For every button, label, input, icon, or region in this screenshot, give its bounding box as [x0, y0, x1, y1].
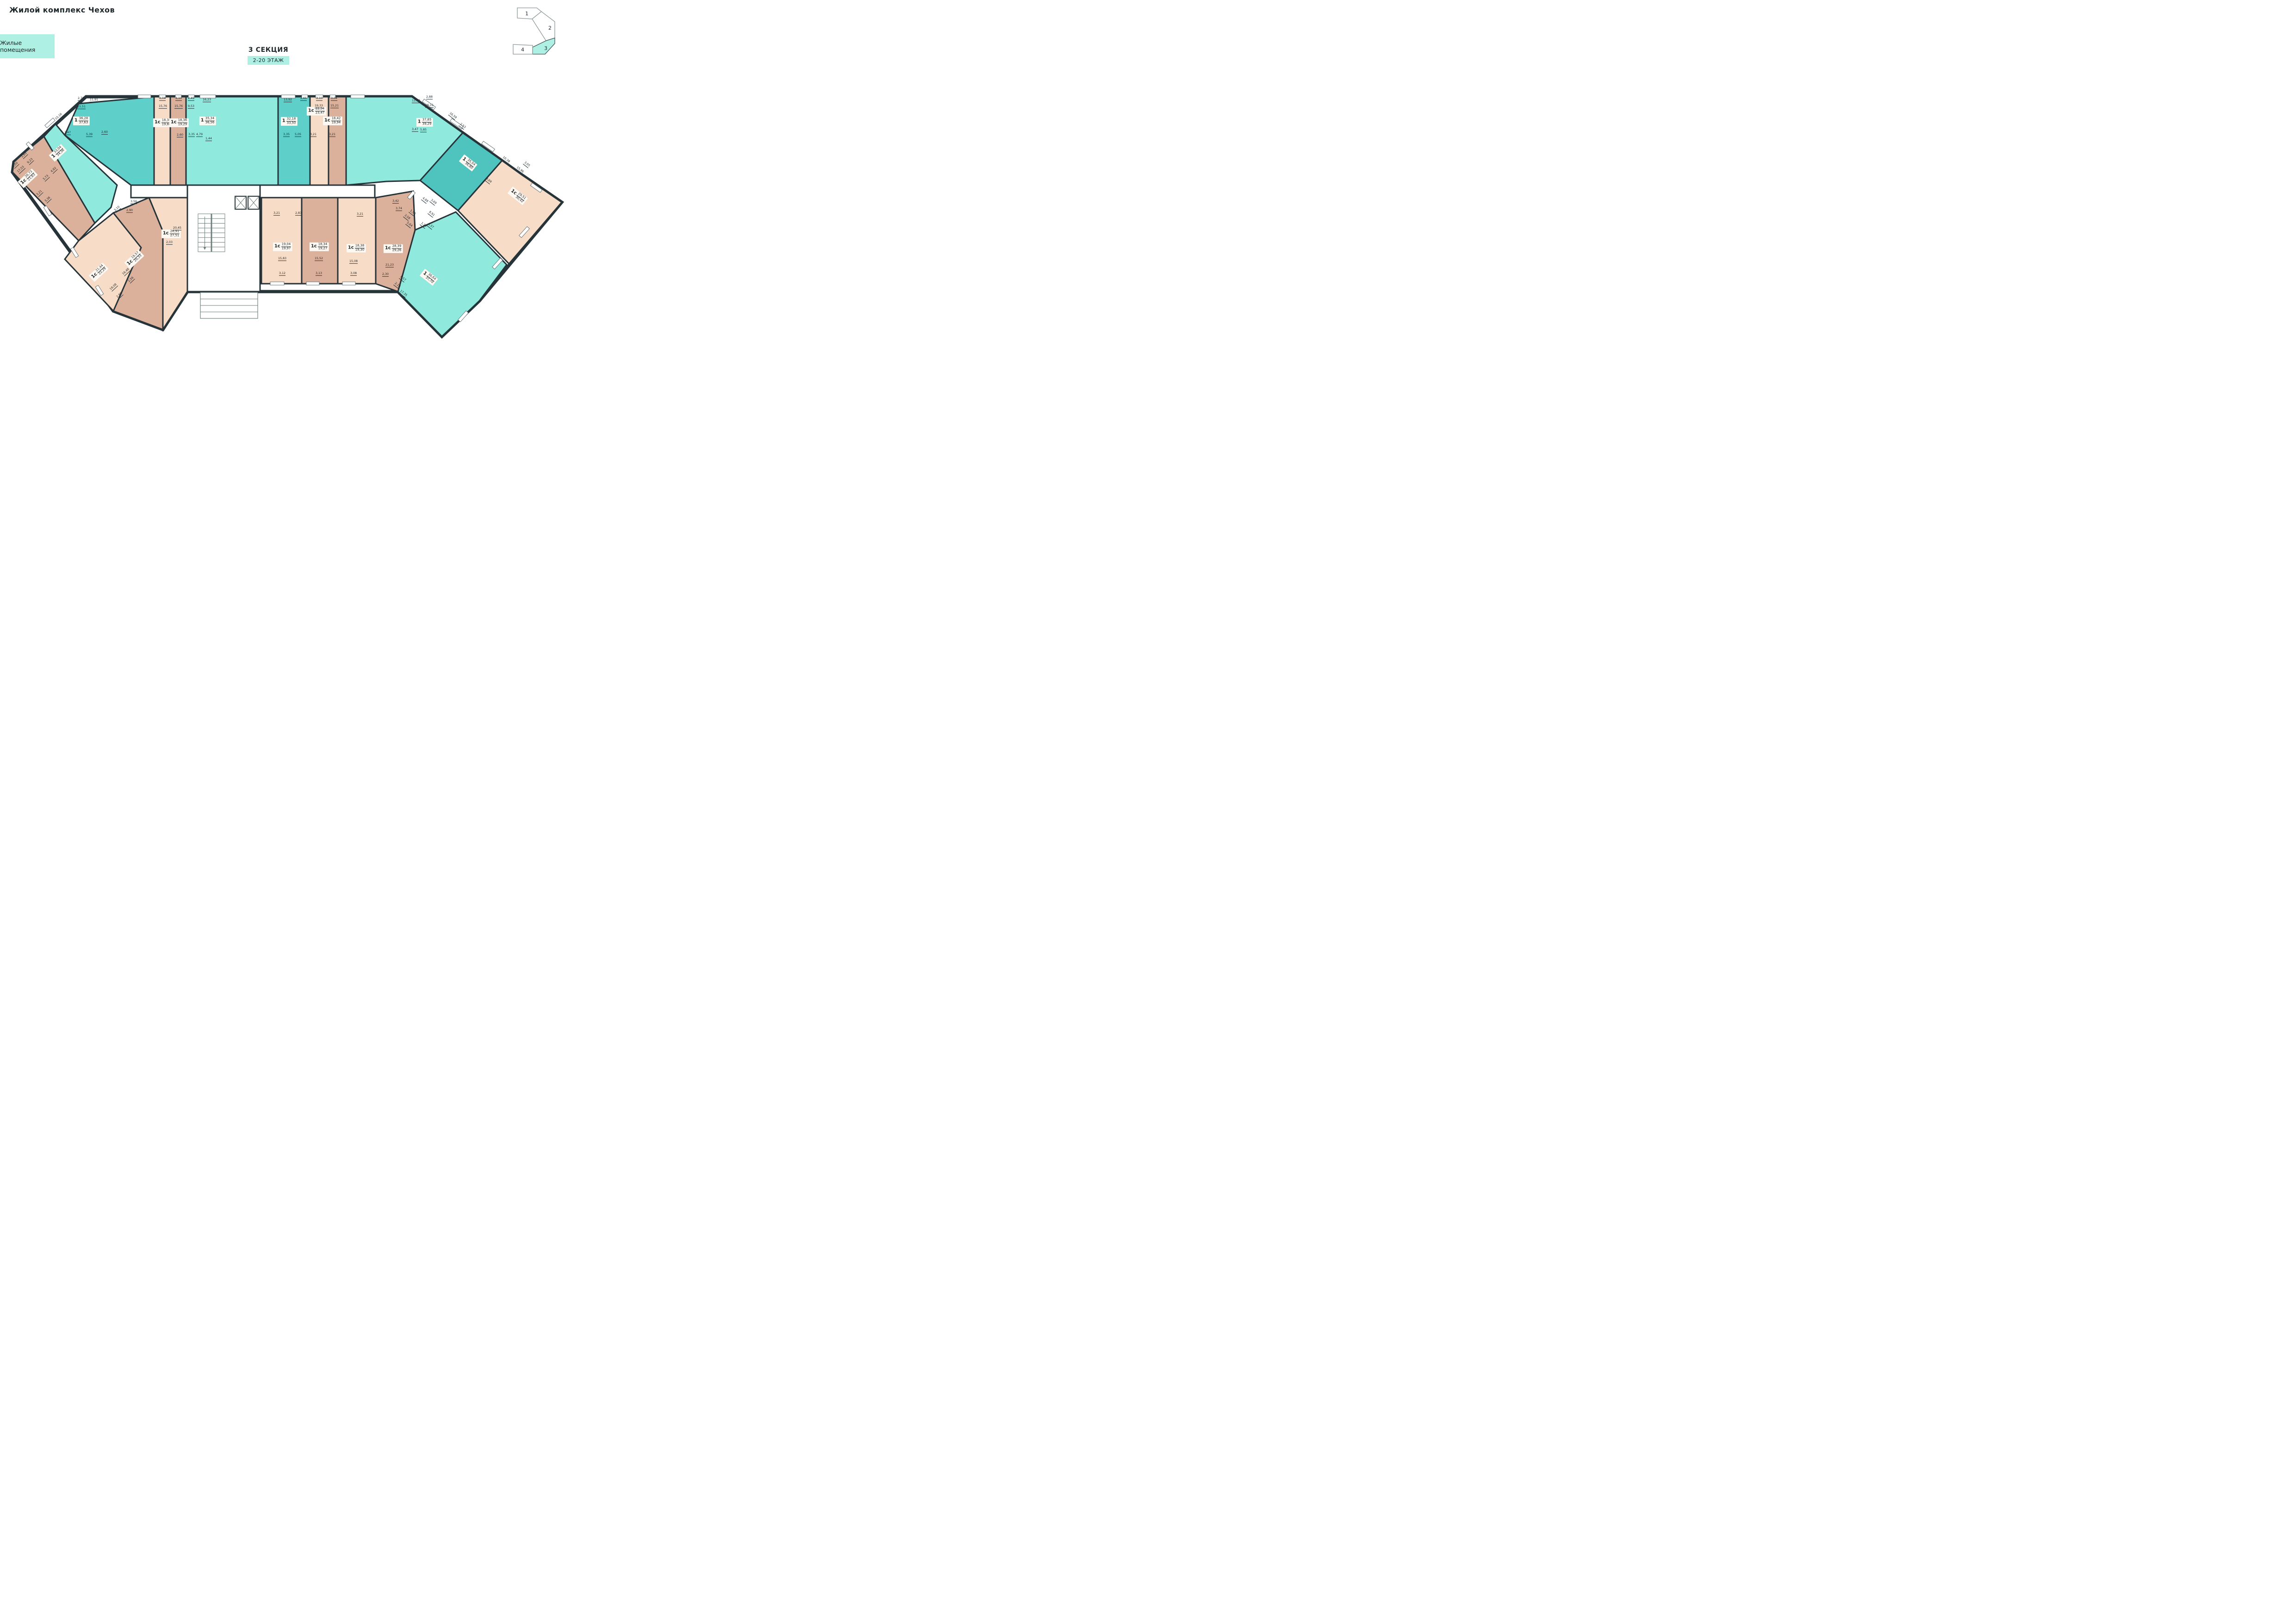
elevator-shaft — [248, 196, 259, 209]
window — [351, 95, 365, 98]
window — [302, 95, 308, 98]
window — [200, 95, 216, 98]
apartment-a5[interactable] — [278, 97, 310, 185]
floorplan-canvas — [0, 0, 574, 406]
apartment-b2[interactable] — [302, 198, 338, 284]
apartment-a3[interactable] — [170, 97, 186, 185]
window — [159, 95, 166, 98]
apartment-b3[interactable] — [261, 198, 302, 284]
apartment-a4[interactable] — [186, 97, 278, 185]
window — [330, 95, 335, 98]
elevator-shaft — [235, 196, 246, 209]
window — [316, 95, 323, 98]
window — [281, 95, 295, 98]
floorplan-page: Жилой комплекс Чехов Жилые помещения 3 С… — [0, 0, 574, 406]
window — [342, 282, 355, 285]
entrance-steps — [200, 292, 258, 318]
apartment-a7[interactable] — [329, 97, 346, 185]
apartment-a6[interactable] — [310, 97, 329, 185]
window — [138, 95, 151, 98]
apartment-a2[interactable] — [154, 97, 170, 185]
window — [270, 282, 284, 285]
window — [188, 95, 194, 98]
window — [306, 282, 319, 285]
apartment-b1[interactable] — [338, 198, 376, 284]
window — [175, 95, 181, 98]
